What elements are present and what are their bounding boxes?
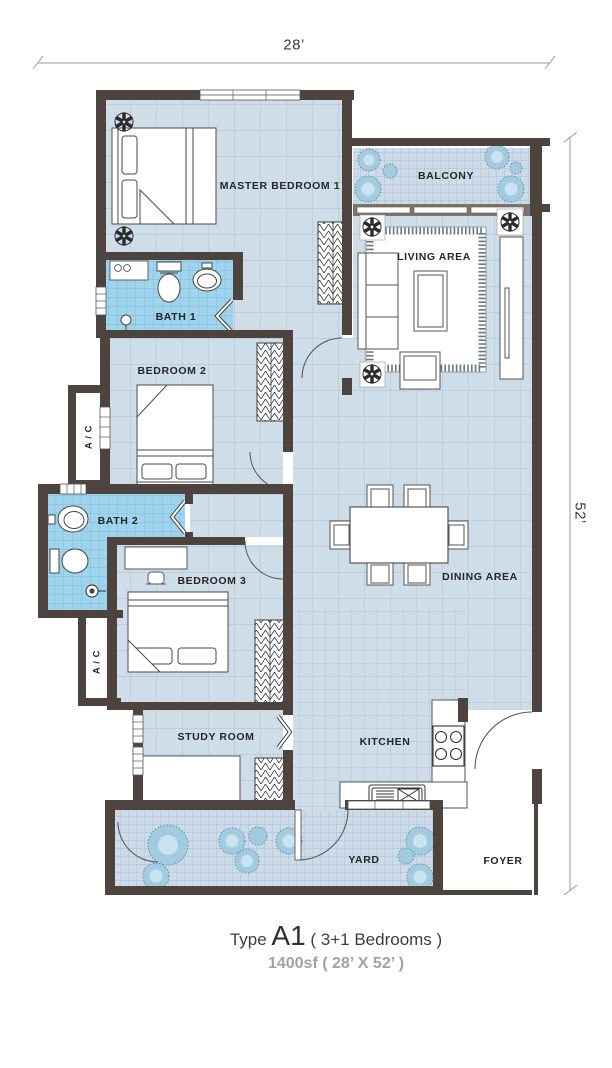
plan-type-line: Type A1 ( 3+1 Bedrooms ) <box>230 920 442 952</box>
room-label-bath-1: BATH 1 <box>156 311 197 323</box>
sofa-icon <box>358 253 398 349</box>
room-label-balcony: BALCONY <box>418 170 474 182</box>
room-label-kitchen: KITCHEN <box>360 736 411 748</box>
room-label-ac-upper: A / C <box>84 425 95 449</box>
side-table-icon <box>400 352 440 389</box>
room-label-ac-lower: A / C <box>92 650 103 674</box>
bed-icon <box>112 128 216 224</box>
toilet-icon <box>50 549 88 573</box>
floor-plan-drawing <box>0 0 612 1068</box>
room-label-bath-2: BATH 2 <box>98 515 139 527</box>
plan-type-suffix: ( 3+1 Bedrooms ) <box>306 930 443 949</box>
bed-icon <box>128 592 228 672</box>
plan-caption: Type A1 ( 3+1 Bedrooms ) 1400sf ( 28’ X … <box>230 920 442 973</box>
room-label-bedroom-2: BEDROOM 2 <box>138 365 207 377</box>
foyer-floor <box>465 712 532 804</box>
plan-size-line: 1400sf ( 28’ X 52’ ) <box>230 955 442 973</box>
room-label-living-area: LIVING AREA <box>397 251 471 263</box>
study-desk-icon <box>140 756 240 804</box>
washer-counter <box>110 261 148 280</box>
stove-icon <box>433 726 464 766</box>
room-label-master-bedroom-1: MASTER BEDROOM 1 <box>220 180 340 192</box>
room-label-yard: YARD <box>348 854 379 866</box>
dimension-height-label: 52’ <box>572 502 589 524</box>
desk-icon <box>125 547 187 569</box>
toilet-icon <box>157 262 181 302</box>
room-label-dining-area: DINING AREA <box>442 571 518 583</box>
bath2-shower-floor <box>48 537 107 612</box>
tv-console-icon <box>500 237 523 379</box>
bed-icon <box>137 385 213 488</box>
coffee-table-icon <box>414 271 447 331</box>
room-label-bedroom-3: BEDROOM 3 <box>178 575 247 587</box>
plan-type-code: A1 <box>271 920 305 951</box>
chair-icon <box>146 572 166 584</box>
room-label-foyer: FOYER <box>483 855 522 867</box>
plan-type-prefix: Type <box>230 930 272 949</box>
floor-plan-stage: 28’ 52’ MASTER BEDROOM 1 BALCONY LIVING … <box>0 0 612 1068</box>
room-label-study-room: STUDY ROOM <box>178 731 255 743</box>
dimension-width-label: 28’ <box>283 37 305 54</box>
